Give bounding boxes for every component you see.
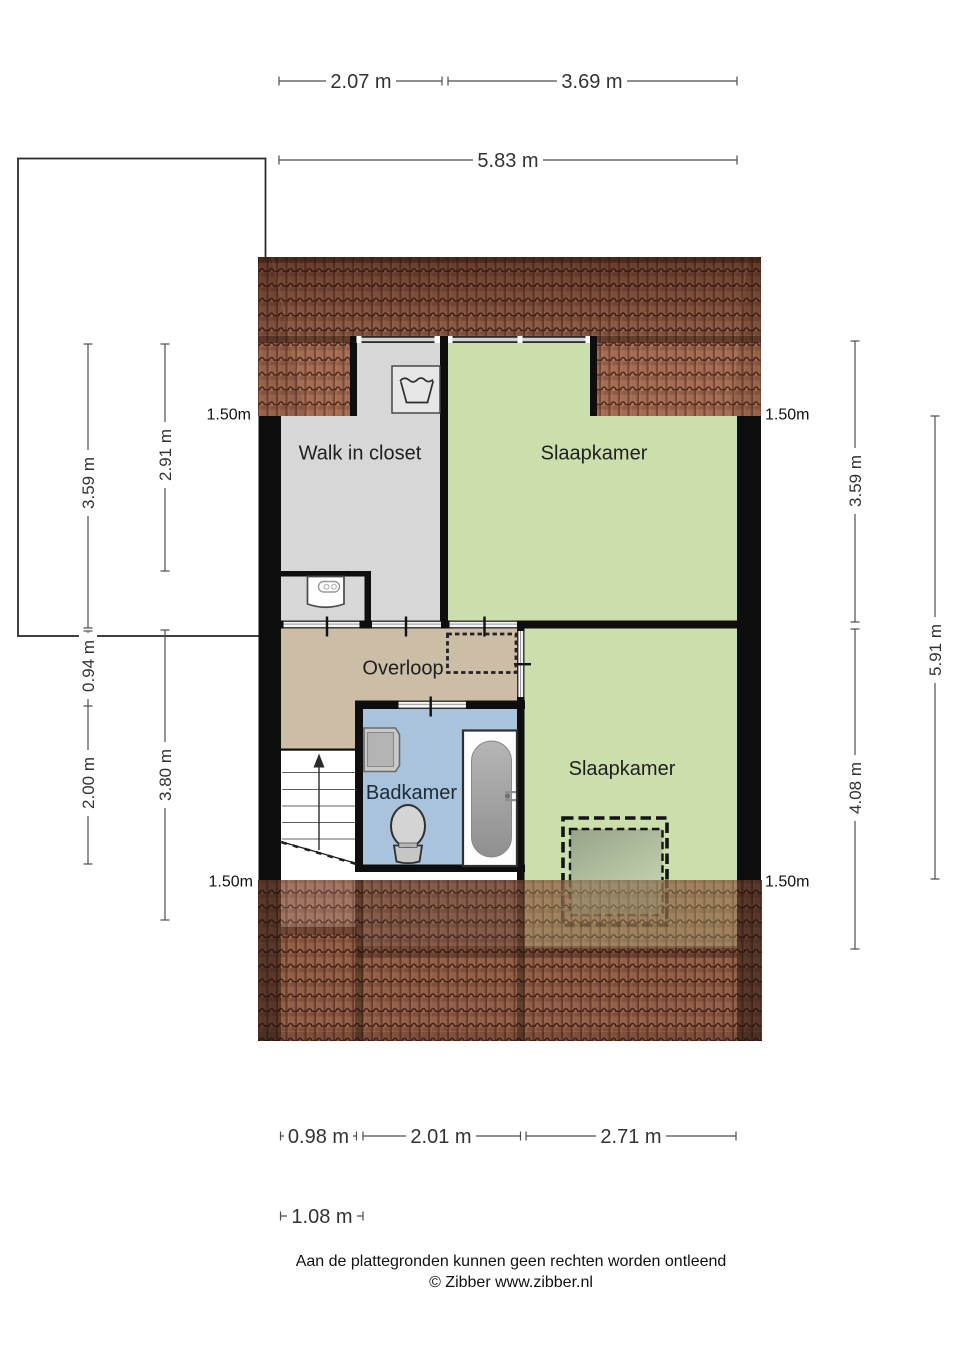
svg-text:1.50m: 1.50m: [765, 407, 809, 424]
svg-text:Overloop: Overloop: [362, 658, 443, 680]
svg-text:1.50m: 1.50m: [209, 874, 253, 891]
svg-text:0.98 m: 0.98 m: [288, 1126, 349, 1148]
svg-text:1.08 m: 1.08 m: [291, 1206, 352, 1228]
svg-text:4.08 m: 4.08 m: [846, 762, 865, 814]
svg-text:Badkamer: Badkamer: [366, 782, 457, 804]
svg-text:5.91 m: 5.91 m: [926, 624, 945, 676]
svg-text:3.59 m: 3.59 m: [846, 455, 865, 507]
svg-text:Slaapkamer: Slaapkamer: [541, 443, 648, 465]
svg-text:0.94 m: 0.94 m: [79, 640, 98, 692]
svg-text:Slaapkamer: Slaapkamer: [569, 758, 676, 780]
svg-text:1.50m: 1.50m: [765, 874, 809, 891]
svg-text:2.00 m: 2.00 m: [79, 757, 98, 809]
svg-text:3.59 m: 3.59 m: [79, 457, 98, 509]
svg-text:2.01 m: 2.01 m: [410, 1126, 471, 1148]
svg-text:3.80 m: 3.80 m: [156, 749, 175, 801]
svg-text:Walk in closet: Walk in closet: [299, 443, 422, 465]
svg-text:© Zibber www.zibber.nl: © Zibber www.zibber.nl: [429, 1274, 593, 1291]
svg-text:2.91 m: 2.91 m: [156, 429, 175, 481]
svg-text:2.71 m: 2.71 m: [600, 1126, 661, 1148]
svg-text:1.50m: 1.50m: [207, 407, 251, 424]
svg-text:5.83 m: 5.83 m: [477, 150, 538, 172]
svg-text:Aan de plattegronden kunnen ge: Aan de plattegronden kunnen geen rechten…: [296, 1253, 727, 1270]
svg-text:2.07 m: 2.07 m: [330, 71, 391, 93]
svg-text:3.69 m: 3.69 m: [561, 71, 622, 93]
